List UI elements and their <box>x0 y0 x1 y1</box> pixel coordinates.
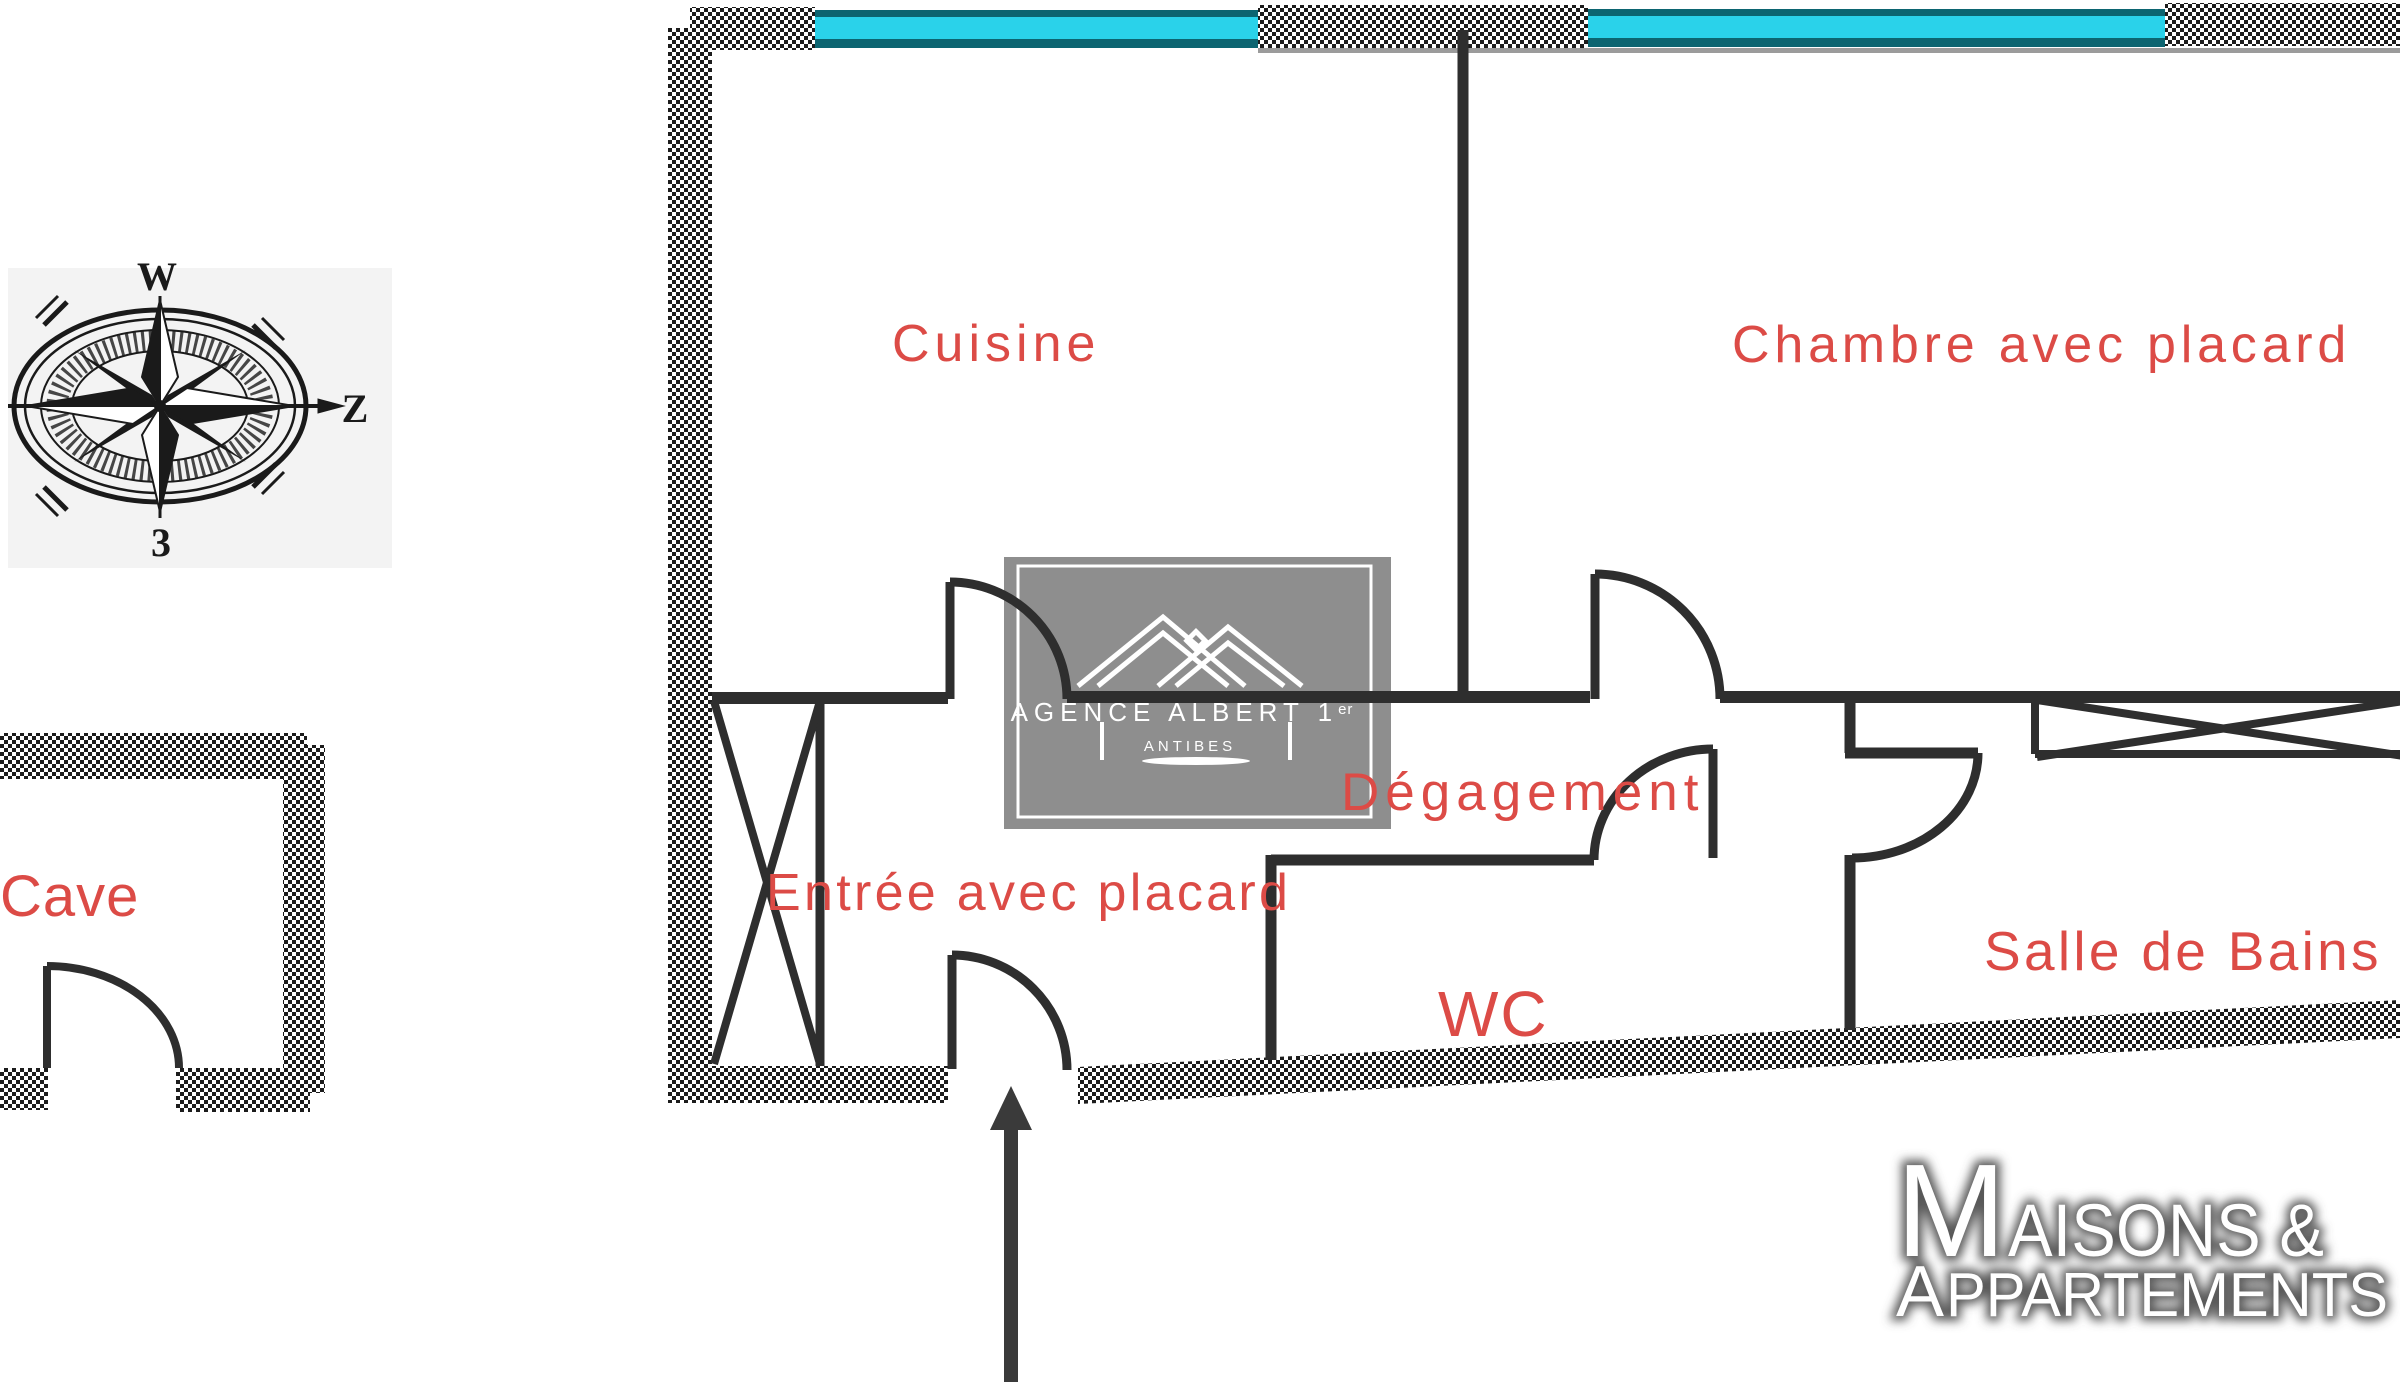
svg-text:3: 3 <box>151 520 171 565</box>
svg-text:Salle de Bains: Salle de Bains <box>1984 920 2382 982</box>
svg-text:W: W <box>137 254 177 299</box>
svg-text:Z: Z <box>342 386 369 431</box>
svg-text:Cuisine: Cuisine <box>892 315 1100 373</box>
svg-text:PPARTEMENTS: PPARTEMENTS <box>1946 1261 2388 1330</box>
svg-text:AISONS &: AISONS & <box>2008 1189 2324 1272</box>
svg-text:ANTIBES: ANTIBES <box>1144 738 1236 755</box>
svg-text:Entrée avec placard: Entrée avec placard <box>766 864 1291 922</box>
svg-text:Dégagement: Dégagement <box>1341 763 1704 822</box>
svg-text:WC: WC <box>1438 978 1549 1050</box>
svg-text:Cave: Cave <box>0 864 139 929</box>
svg-text:A: A <box>1896 1252 1944 1332</box>
svg-text:Chambre avec placard: Chambre avec placard <box>1732 316 2351 374</box>
